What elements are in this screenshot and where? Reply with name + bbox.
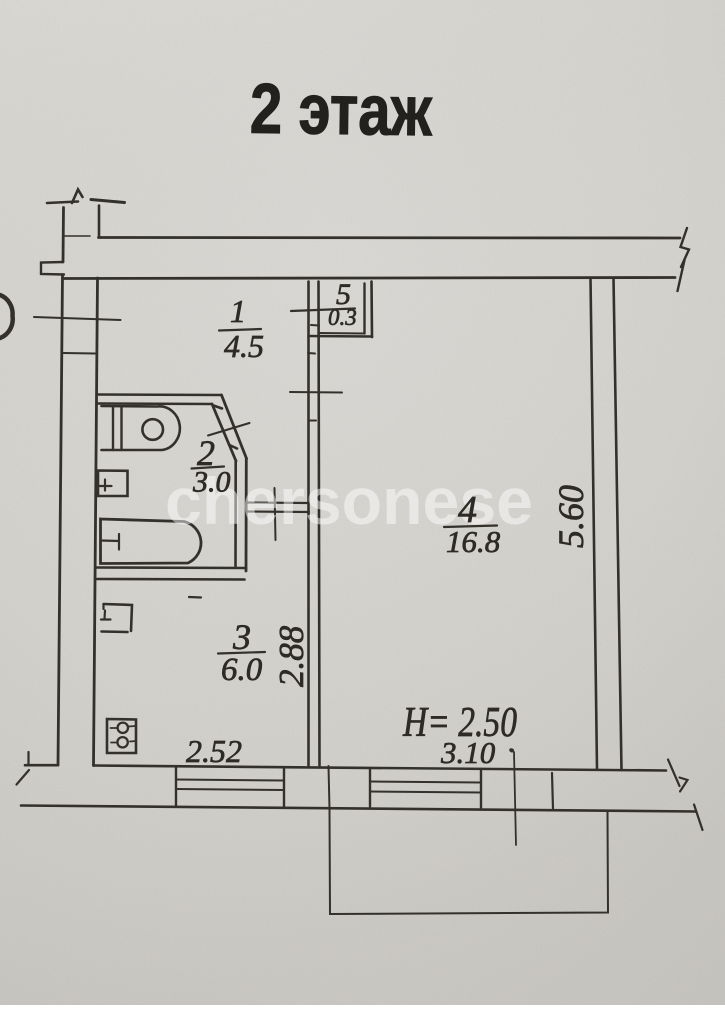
svg-text:3: 3 [232, 617, 251, 657]
svg-text:3.10: 3.10 [440, 735, 496, 770]
svg-text:0.3: 0.3 [328, 305, 357, 330]
svg-text:4.5: 4.5 [224, 328, 264, 364]
svg-text:6.0: 6.0 [221, 652, 263, 688]
svg-text:3.0: 3.0 [192, 466, 231, 499]
svg-text:1: 1 [230, 293, 246, 329]
svg-text:2 этаж: 2 этаж [249, 70, 433, 152]
svg-text:2.88: 2.88 [272, 625, 311, 687]
svg-text:16.8: 16.8 [446, 524, 501, 559]
svg-text:2.52: 2.52 [186, 733, 242, 769]
svg-text:5.60: 5.60 [551, 485, 591, 548]
